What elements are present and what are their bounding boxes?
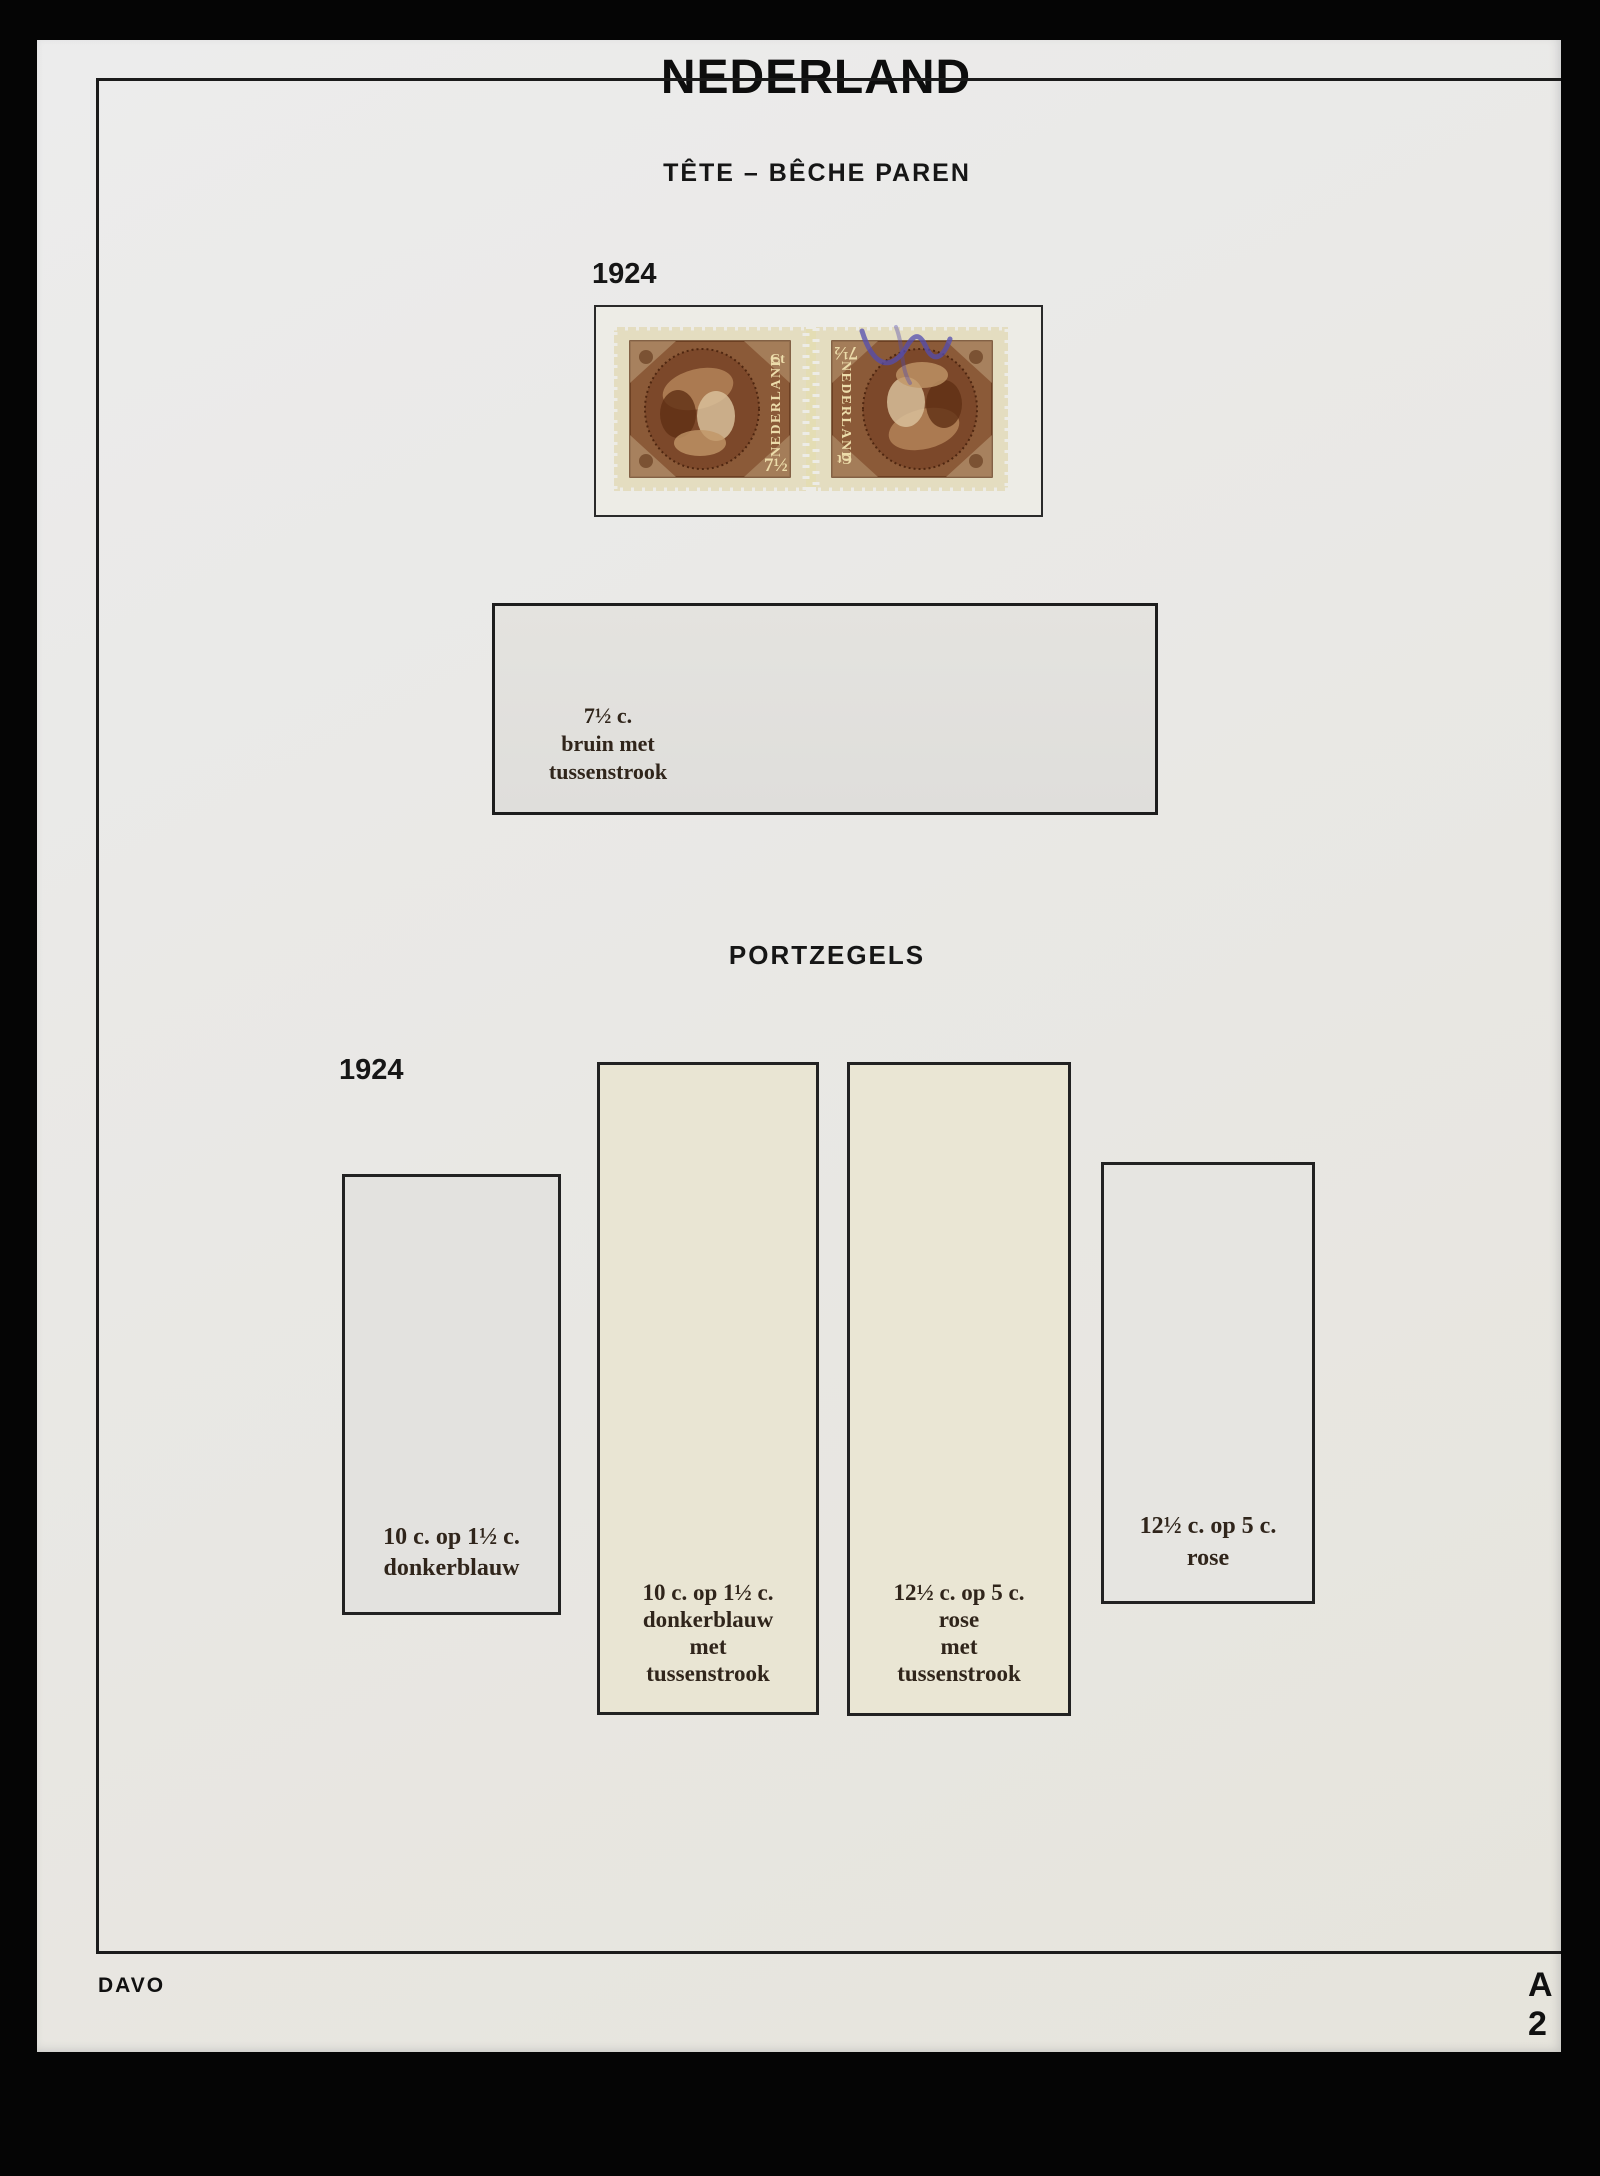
mount-label-line: tussenstrook [508,758,708,786]
portzegels-section-title: PORTZEGELS [677,940,977,971]
photo-edge-left [0,0,37,2176]
mount-label-line: 12½ c. op 5 c. [847,1579,1071,1606]
photo-edge-bottom [0,2052,1600,2176]
photo-edge-right [1561,0,1600,2176]
mount-label-line: 7½ c. [508,702,708,730]
mount-label-line: tussenstrook [597,1660,819,1687]
tete-beche-mount-label: 7½ c. bruin met tussenstrook [508,702,708,786]
publisher-label: DAVO [98,1974,165,1998]
tete-beche-year-label: 1924 [592,258,657,291]
mount-label-line: 10 c. op 1½ c. [597,1579,819,1606]
album-page: NEDERLAND TÊTE – BÊCHE PAREN 1924 [36,38,1562,2054]
mount-label-line: donkerblauw [342,1553,561,1584]
portrait-collar [674,430,726,456]
mount-label-line: met [847,1633,1071,1660]
mount-label-line: rose [847,1606,1071,1633]
portzegels-year-label: 1924 [339,1054,404,1087]
stamp-value-text: 7½ [764,455,788,476]
portzegel-mount-1-label: 10 c. op 1½ c. donkerblauw [342,1522,561,1584]
portrait-shadow [926,380,962,428]
mount-label-line: tussenstrook [847,1660,1071,1687]
mount-label-line: met [597,1633,819,1660]
photo-backdrop: NEDERLAND TÊTE – BÊCHE PAREN 1924 [0,0,1600,2176]
portzegel-mount-2-label: 10 c. op 1½ c. donkerblauw met tussenstr… [597,1579,819,1687]
corner-ornament [969,454,983,468]
corner-ornament [969,350,983,364]
stamp-left: Ct NEDERLAND 7½ [614,327,806,491]
portzegel-mount-3-label: 12½ c. op 5 c. rose met tussenstrook [847,1579,1071,1687]
mount-label-line: donkerblauw [597,1606,819,1633]
stamp-value-text: 7½ [834,342,858,363]
stamp-country-text: NEDERLAND [769,355,784,457]
tete-beche-section-title: TÊTE – BÊCHE PAREN [662,159,972,188]
stamp-right-inverted: Ct NEDERLAND 7½ [816,327,1008,491]
mount-label-line: 10 c. op 1½ c. [342,1522,561,1553]
page-code-label: A 2 [1528,1966,1562,2044]
mount-label-line: 12½ c. op 5 c. [1101,1510,1315,1542]
corner-ornament [639,350,653,364]
stamp-pair: Ct NEDERLAND 7½ [612,319,1024,499]
portzegel-mount-4-label: 12½ c. op 5 c. rose [1101,1510,1315,1574]
stamp-country-text: NEDERLAND [838,361,853,463]
mount-label-line: bruin met [508,730,708,758]
photo-edge-top [0,0,1600,40]
corner-ornament [639,454,653,468]
mount-label-line: rose [1101,1542,1315,1574]
portrait-shadow [660,390,696,438]
